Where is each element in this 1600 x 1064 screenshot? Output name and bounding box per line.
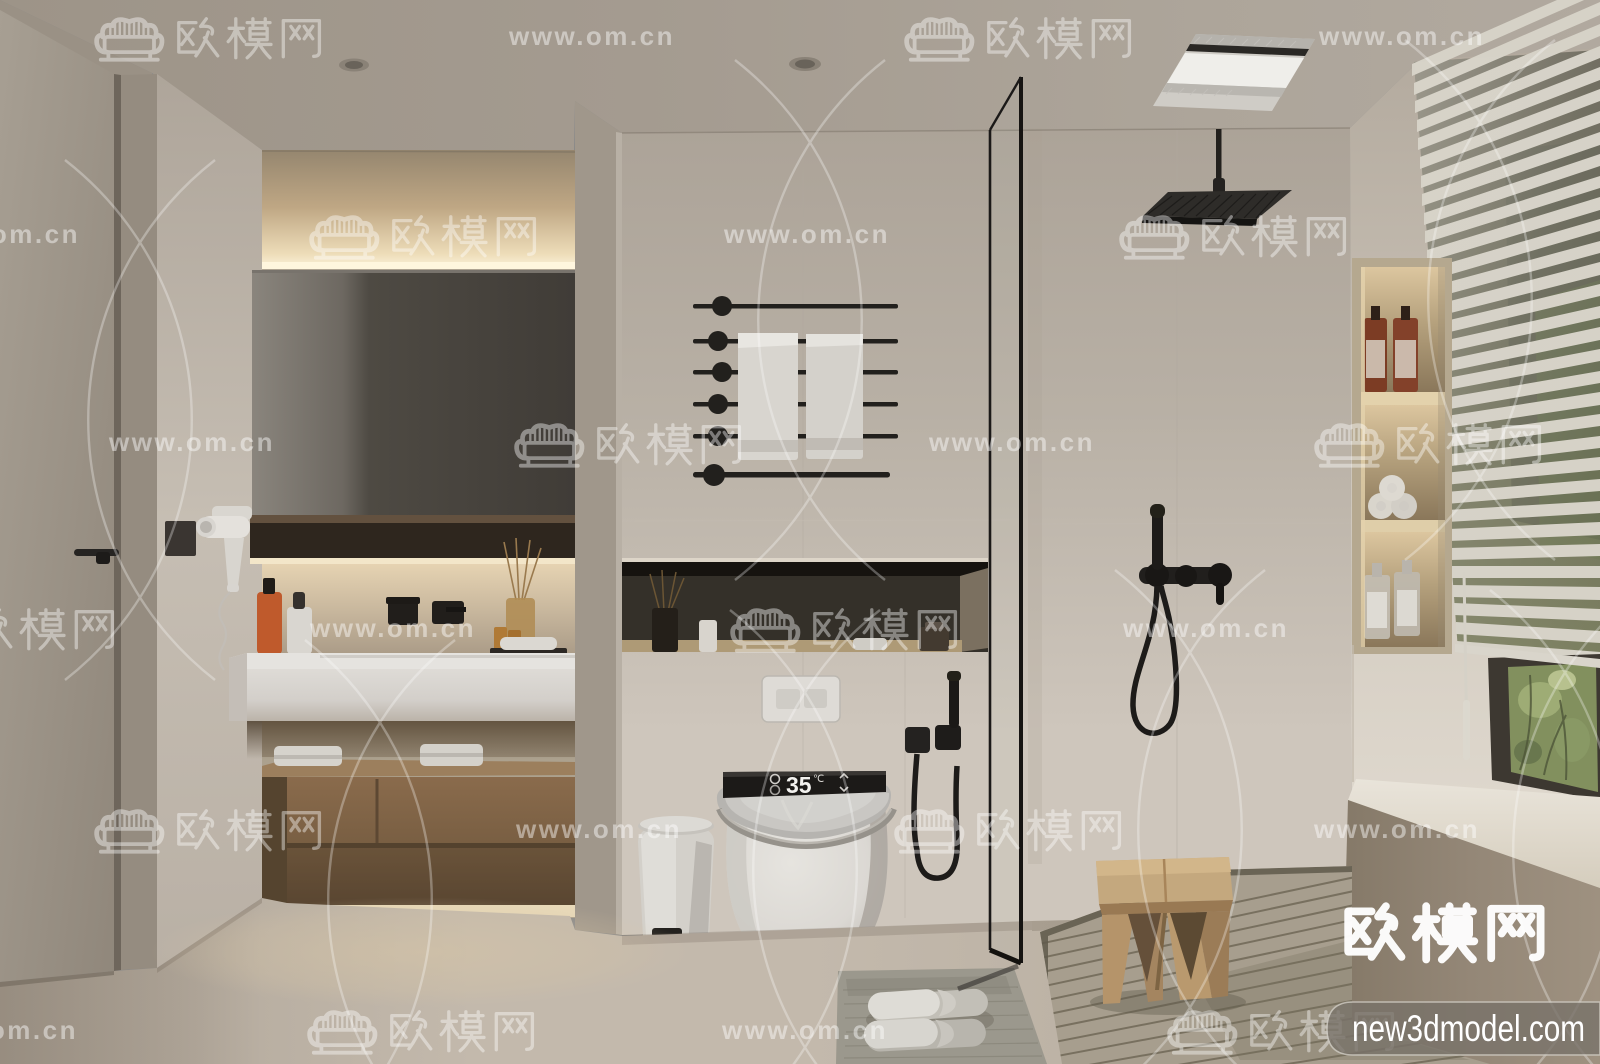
svg-text:www.om.cn: www.om.cn [508, 21, 675, 51]
svg-text:℃: ℃ [813, 774, 824, 785]
svg-text:www.om.cn: www.om.cn [515, 814, 682, 844]
svg-text:www.om.cn: www.om.cn [108, 427, 275, 457]
svg-text:35: 35 [786, 772, 812, 798]
svg-text:www.om.cn: www.om.cn [721, 1015, 888, 1045]
svg-text:www.om.cn: www.om.cn [1318, 21, 1485, 51]
svg-text:www.om.cn: www.om.cn [723, 219, 890, 249]
svg-text:www.om.cn: www.om.cn [928, 427, 1095, 457]
svg-text:www.om.cn: www.om.cn [1122, 613, 1289, 643]
svg-text:www.om.cn: www.om.cn [309, 613, 476, 643]
svg-text:new3dmodel.com: new3dmodel.com [1352, 1008, 1585, 1049]
svg-text:www.om.cn: www.om.cn [1313, 814, 1480, 844]
svg-text:www.om.cn: www.om.cn [0, 219, 80, 249]
svg-text:www.om.cn: www.om.cn [0, 1015, 78, 1045]
